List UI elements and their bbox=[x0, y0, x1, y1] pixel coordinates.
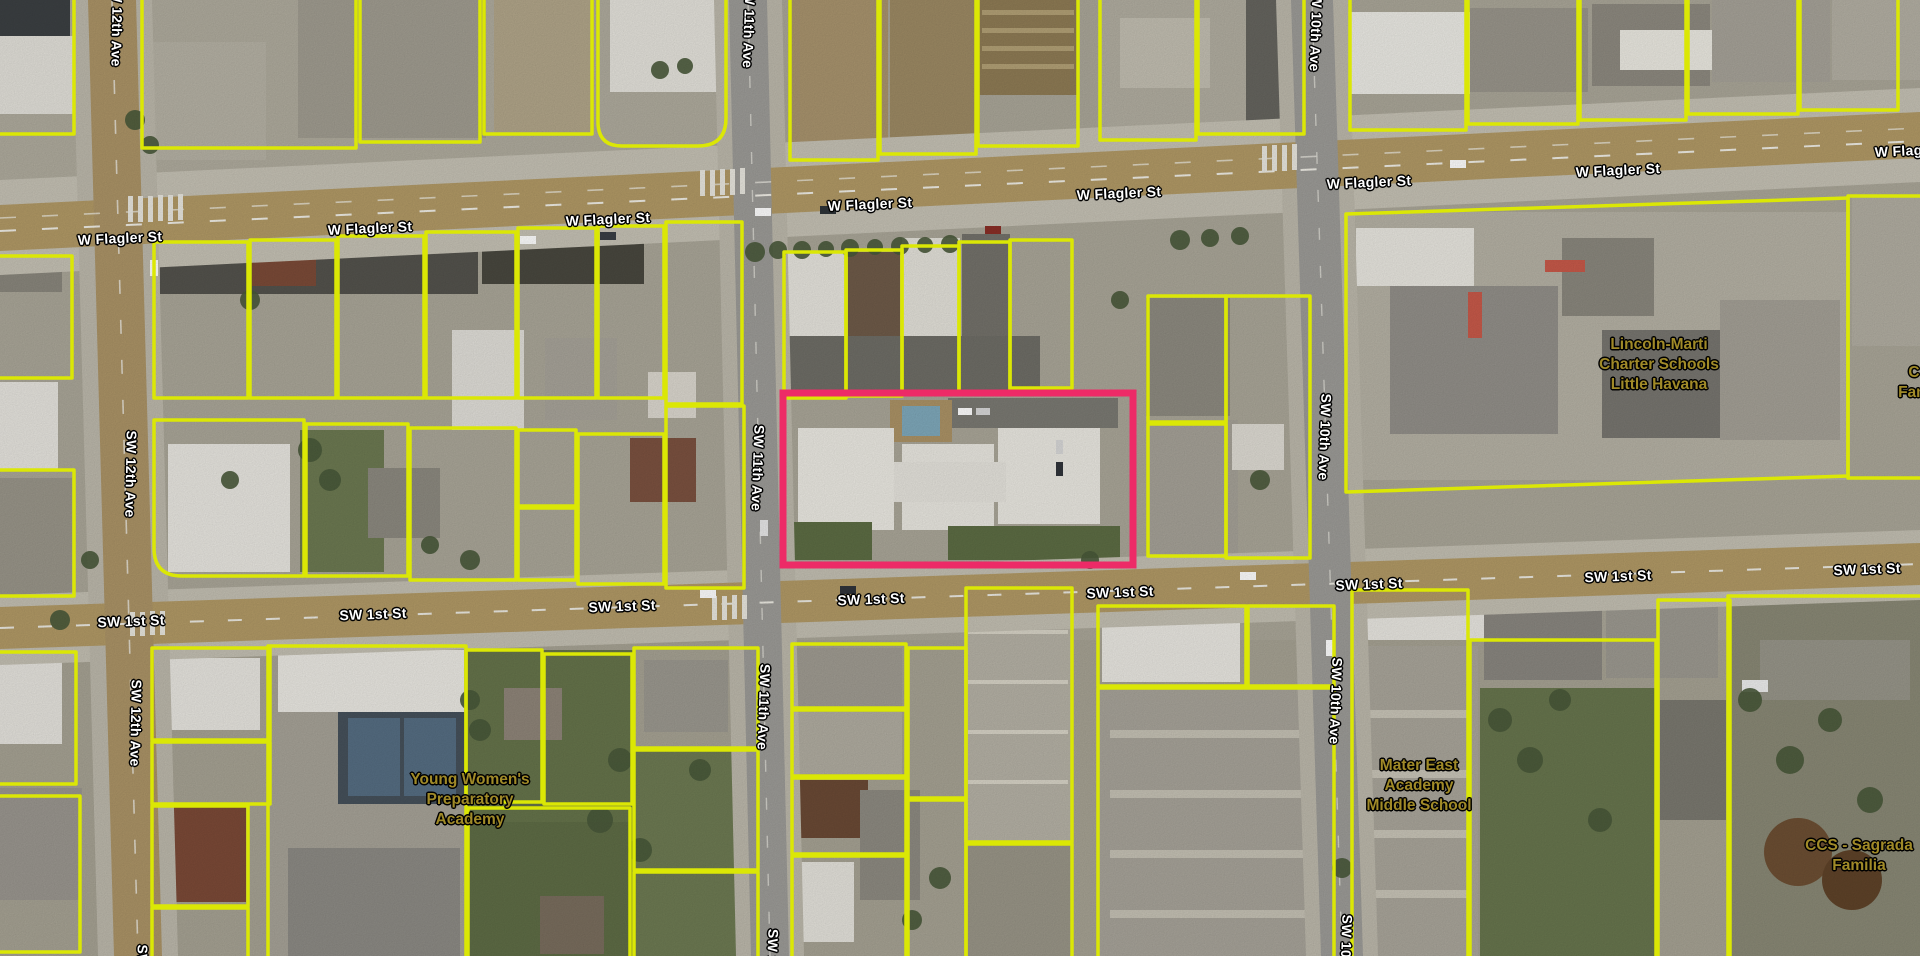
map-viewport[interactable]: W Flagler StW Flagler StW Flagler StW Fl… bbox=[0, 0, 1920, 956]
photo-grain bbox=[0, 0, 1920, 956]
aerial-imagery bbox=[0, 0, 1920, 956]
